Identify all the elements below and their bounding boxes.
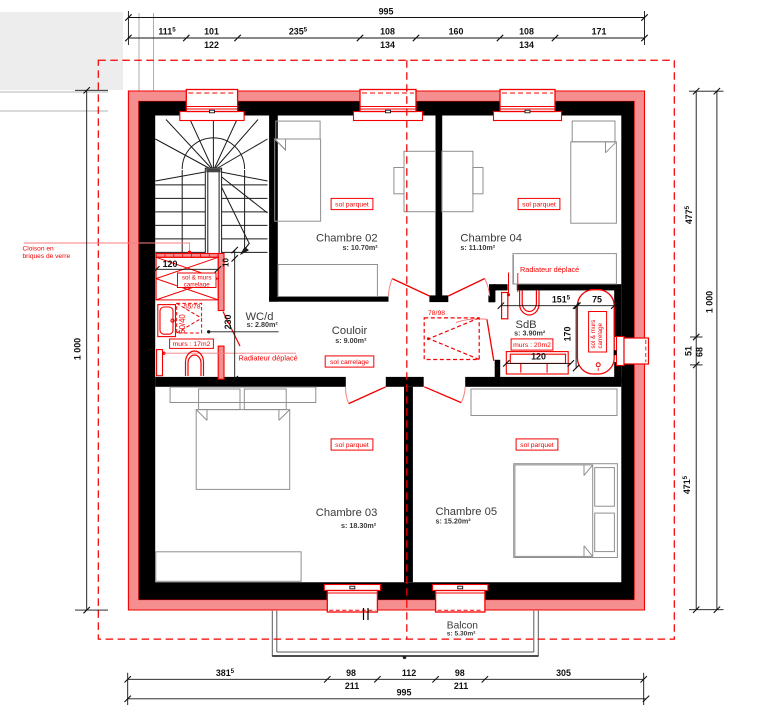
svg-text:10: 10	[222, 258, 231, 267]
svg-text:995: 995	[397, 688, 412, 698]
svg-text:134: 134	[519, 40, 534, 50]
svg-text:s: 5.30m²: s: 5.30m²	[447, 630, 476, 637]
svg-text:305: 305	[556, 668, 571, 678]
svg-text:60/40: 60/40	[178, 314, 187, 334]
svg-text:s: 10.70m²: s: 10.70m²	[343, 243, 379, 252]
svg-text:s: 2.80m²: s: 2.80m²	[247, 320, 279, 329]
svg-text:sol parquet: sol parquet	[522, 201, 556, 208]
svg-text:carrelage: carrelage	[597, 322, 604, 348]
svg-text:211: 211	[345, 681, 359, 691]
svg-text:Cloison en: Cloison en	[23, 246, 54, 253]
svg-text:98: 98	[346, 668, 356, 678]
svg-text:112: 112	[402, 668, 416, 678]
svg-text:Radiateur déplacé: Radiateur déplacé	[520, 265, 579, 274]
svg-text:122: 122	[204, 40, 219, 50]
svg-text:160: 160	[449, 27, 464, 37]
svg-text:murs : 17m2: murs : 17m2	[173, 341, 211, 348]
svg-text:sol carrelage: sol carrelage	[330, 359, 369, 366]
svg-text:carrelage: carrelage	[184, 281, 211, 288]
svg-text:s: 15.20m²: s: 15.20m²	[436, 517, 472, 526]
svg-text:170: 170	[563, 327, 573, 342]
svg-text:75: 75	[592, 295, 602, 305]
svg-text:134: 134	[380, 40, 395, 50]
svg-text:230: 230	[223, 315, 233, 330]
svg-text:101: 101	[204, 27, 219, 37]
svg-text:1 000: 1 000	[705, 291, 715, 313]
svg-text:98: 98	[455, 668, 465, 678]
svg-text:sol parquet: sol parquet	[335, 442, 369, 449]
svg-text:108: 108	[380, 27, 395, 37]
svg-text:1 000: 1 000	[73, 338, 83, 360]
svg-text:sol & murs: sol & murs	[590, 320, 597, 349]
svg-text:78/98: 78/98	[428, 310, 445, 317]
svg-text:995: 995	[379, 7, 394, 17]
svg-text:murs : 20m2: murs : 20m2	[513, 342, 551, 349]
svg-text:120: 120	[163, 259, 178, 269]
svg-text:sol parquet: sol parquet	[335, 201, 369, 208]
svg-text:51: 51	[684, 346, 694, 356]
svg-text:55/78: 55/78	[184, 304, 201, 311]
svg-text:171: 171	[592, 27, 607, 37]
svg-text:Chambre 03: Chambre 03	[316, 507, 378, 519]
svg-text:s: 9.00m²: s: 9.00m²	[335, 336, 367, 345]
svg-text:108: 108	[519, 27, 534, 37]
svg-text:120: 120	[531, 352, 546, 362]
svg-text:211: 211	[454, 681, 468, 691]
svg-text:briques de verre: briques de verre	[23, 253, 71, 260]
svg-text:s: 11.10m²: s: 11.10m²	[460, 243, 495, 252]
svg-text:s: 18.30m²: s: 18.30m²	[341, 521, 377, 530]
svg-text:s: 3.90m²: s: 3.90m²	[514, 328, 546, 337]
svg-text:68: 68	[695, 347, 705, 357]
svg-text:sol parquet: sol parquet	[520, 442, 554, 449]
svg-text:Radiateur déplacé: Radiateur déplacé	[239, 354, 298, 363]
